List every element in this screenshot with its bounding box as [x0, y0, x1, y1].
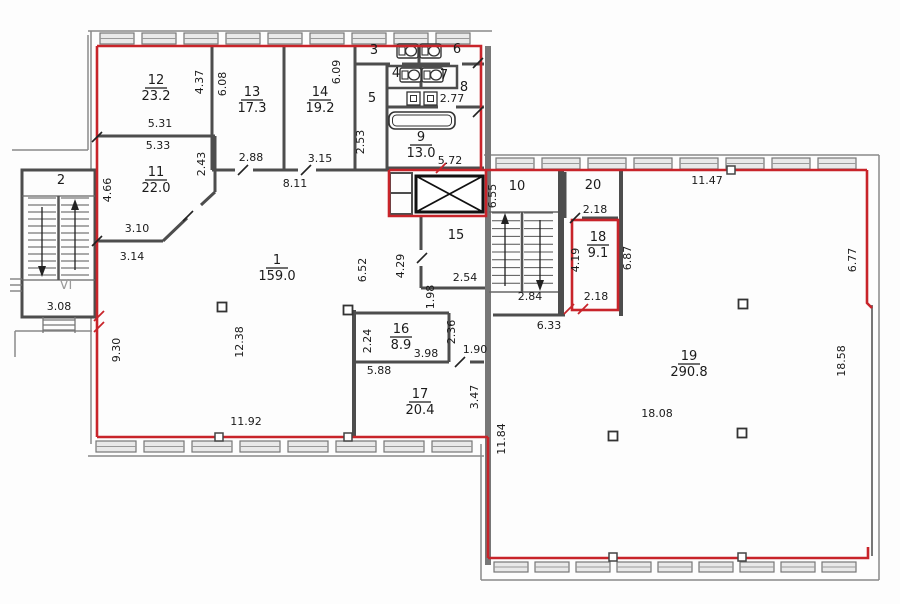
dimension-label: 3.08 — [47, 300, 72, 313]
room-number-8: 8 — [460, 80, 468, 95]
dimension-label: 8.11 — [283, 177, 308, 190]
dimension-label: 6.52 — [356, 258, 369, 283]
dimension-label: 2.53 — [354, 130, 367, 155]
room-number-6: 6 — [453, 42, 461, 57]
dimension-label: 3.98 — [414, 347, 439, 360]
dimension-label: 2.88 — [239, 151, 264, 164]
dimension-label: 2.36 — [445, 320, 458, 345]
dimension-label: 6.09 — [330, 60, 343, 85]
room-area-14: 19.2 — [306, 101, 335, 116]
room-number-20: 20 — [585, 178, 602, 193]
dimension-label: 9.30 — [110, 338, 123, 363]
dimension-label: 3.15 — [308, 152, 333, 165]
floor-plan: 4.376.086.095.315.332.434.662.883.158.11… — [0, 0, 900, 604]
elevator-shaft — [416, 176, 483, 212]
room-number-1: 1 — [273, 253, 281, 268]
dimension-label: 5.31 — [148, 117, 173, 130]
section-label: VI — [60, 278, 73, 293]
exterior-walls — [12, 31, 879, 580]
room-number-16: 16 — [393, 322, 410, 337]
dimension-label: 11.47 — [691, 174, 723, 187]
room-number-13: 13 — [244, 85, 261, 100]
dimension-label: 2.18 — [583, 203, 608, 216]
room-area-16: 8.9 — [391, 338, 412, 353]
dimension-label: 18.58 — [835, 345, 848, 377]
dimension-label: 11.84 — [495, 423, 508, 455]
dimension-label: 11.92 — [230, 415, 262, 428]
dimension-label: 6.33 — [537, 319, 562, 332]
room-number-18: 18 — [590, 230, 607, 245]
room-area-12: 23.2 — [142, 89, 171, 104]
room-area-9: 13.0 — [407, 146, 436, 161]
room-area-11: 22.0 — [142, 181, 171, 196]
dimension-label: 3.47 — [468, 385, 481, 410]
room-number-4: 4 — [392, 66, 400, 81]
dimension-label: 1.90 — [463, 343, 488, 356]
room-area-13: 17.3 — [238, 101, 267, 116]
dimension-label: 2.18 — [584, 290, 609, 303]
room-number-2: 2 — [57, 173, 65, 188]
room-number-17: 17 — [412, 387, 429, 402]
dimension-labels: 4.376.086.095.315.332.434.662.883.158.11… — [47, 60, 859, 455]
room-number-3: 3 — [370, 43, 378, 58]
dimension-label: 3.14 — [120, 250, 145, 263]
dimension-label: 2.43 — [195, 152, 208, 177]
dimension-label: 6.87 — [621, 246, 634, 271]
room-number-9: 9 — [417, 130, 425, 145]
dimension-label: 6.08 — [216, 72, 229, 97]
room-number-14: 14 — [312, 85, 329, 100]
dimension-label: 4.19 — [569, 248, 582, 273]
dimension-label: 4.66 — [101, 178, 114, 203]
room-number-7: 7 — [440, 68, 448, 83]
room-number-5: 5 — [368, 91, 376, 106]
room-number-19: 19 — [681, 349, 698, 364]
dimension-label: 4.37 — [193, 70, 206, 95]
interior-walls — [97, 46, 621, 565]
dimension-label: 6.55 — [486, 184, 499, 209]
dimension-label: 2.24 — [361, 329, 374, 354]
room-area-18: 9.1 — [588, 246, 609, 261]
dimension-label: 18.08 — [641, 407, 673, 420]
dimension-label: 5.33 — [146, 139, 171, 152]
dimension-label: 5.88 — [367, 364, 392, 377]
dimension-label: 1.98 — [424, 285, 437, 310]
dimension-label: 6.77 — [846, 248, 859, 273]
room-number-10: 10 — [509, 179, 526, 194]
room-area-1: 159.0 — [258, 269, 295, 284]
room-number-11: 11 — [148, 165, 165, 180]
dimension-label: 4.29 — [394, 254, 407, 279]
room-area-17: 20.4 — [406, 403, 435, 418]
dimension-label: 5.72 — [438, 154, 463, 167]
dimension-label: 2.84 — [518, 290, 543, 303]
room-area-19: 290.8 — [670, 365, 707, 380]
room-number-15: 15 — [448, 228, 465, 243]
dimension-label: 2.54 — [453, 271, 478, 284]
dimension-label: 3.10 — [125, 222, 150, 235]
room-number-12: 12 — [148, 73, 165, 88]
dimension-label: 12.38 — [233, 326, 246, 358]
